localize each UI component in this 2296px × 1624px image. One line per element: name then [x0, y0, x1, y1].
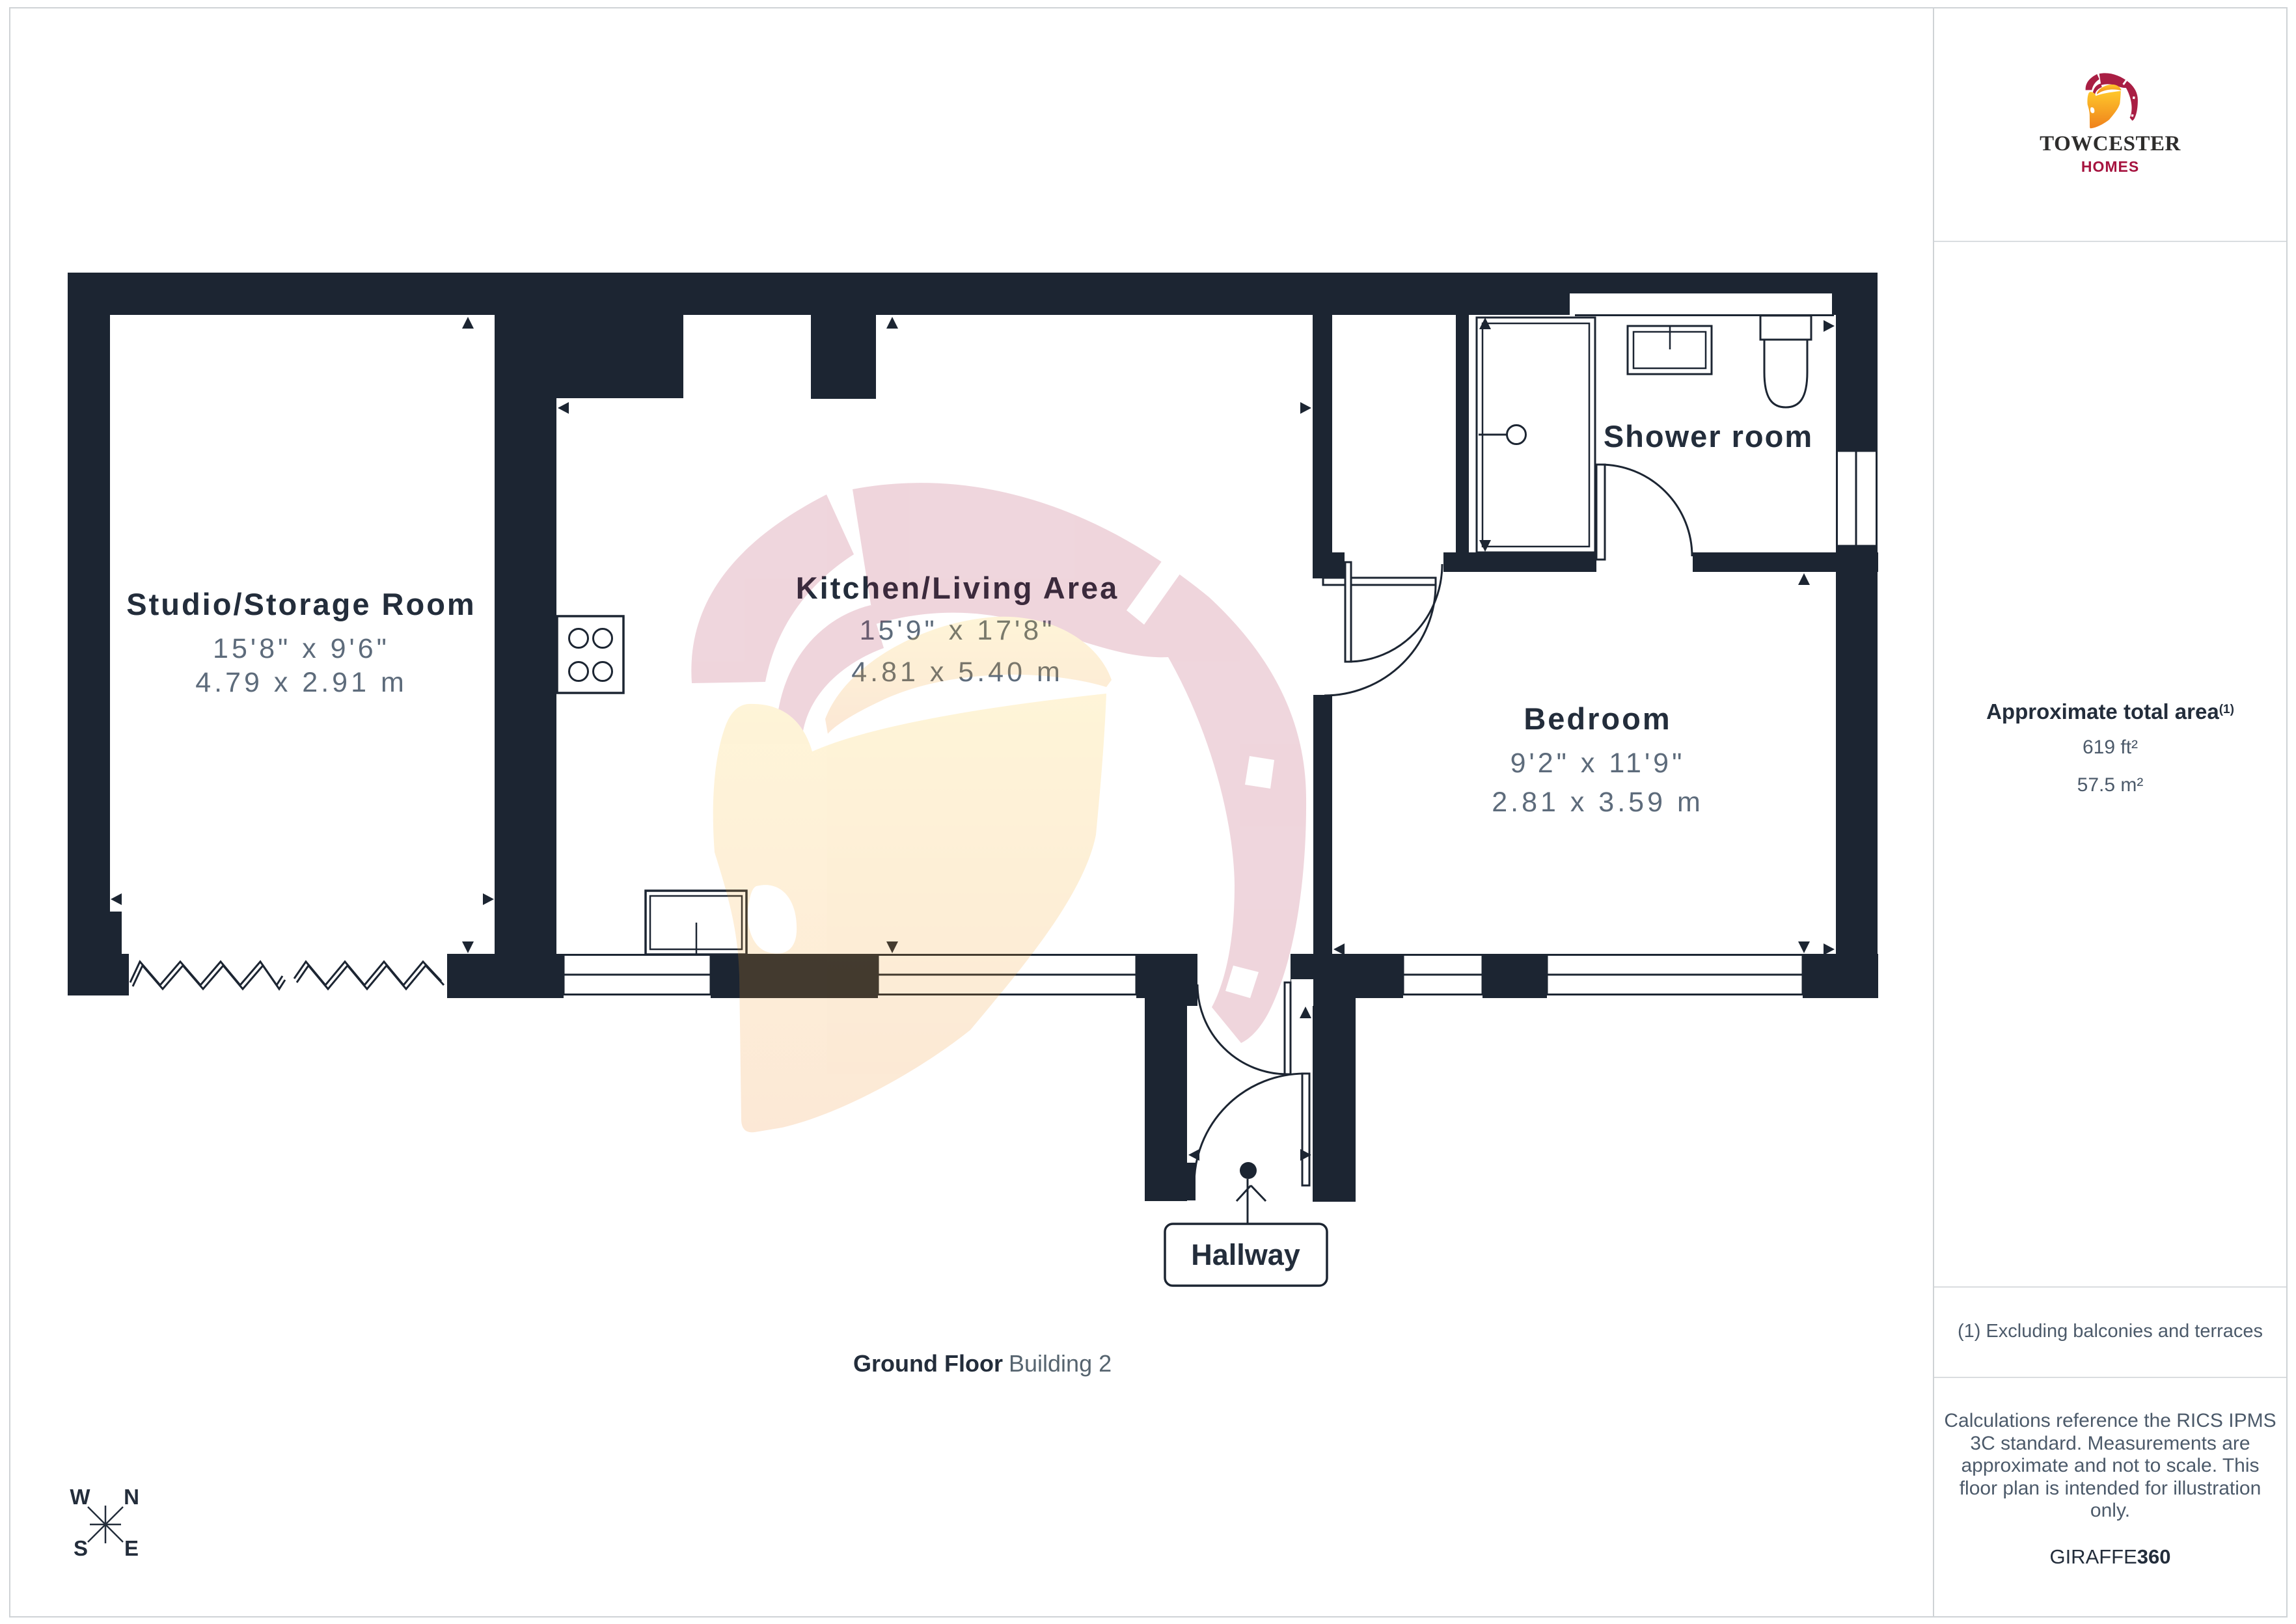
svg-text:Bedroom: Bedroom — [1524, 701, 1671, 736]
svg-text:2.81 x 3.59 m: 2.81 x 3.59 m — [1492, 787, 1704, 818]
svg-text:4.79 x 2.91 m: 4.79 x 2.91 m — [195, 667, 407, 698]
svg-text:Ground Floor: Ground Floor — [853, 1350, 1003, 1377]
svg-text:15'8" x 9'6": 15'8" x 9'6" — [213, 633, 390, 664]
svg-text:Hallway: Hallway — [1191, 1238, 1300, 1271]
svg-text:E: E — [124, 1536, 139, 1560]
svg-text:9'2" x 11'9": 9'2" x 11'9" — [1510, 748, 1686, 779]
svg-text:Building 2: Building 2 — [1009, 1350, 1112, 1377]
svg-text:N: N — [124, 1485, 139, 1509]
svg-text:W: W — [70, 1485, 90, 1509]
svg-text:S: S — [74, 1536, 88, 1560]
svg-text:Studio/Storage Room: Studio/Storage Room — [126, 587, 476, 621]
svg-text:Shower room: Shower room — [1604, 419, 1813, 453]
